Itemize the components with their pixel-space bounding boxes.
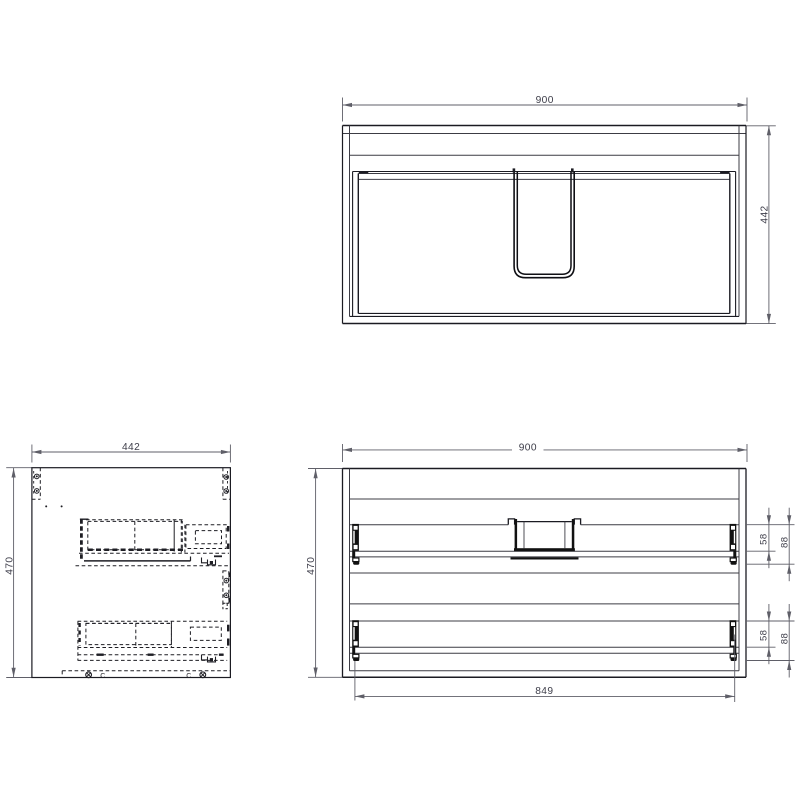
svg-text:58: 58 [759, 630, 770, 641]
svg-text:88: 88 [779, 537, 790, 548]
svg-text:849: 849 [535, 686, 553, 697]
svg-text:470: 470 [4, 556, 15, 574]
svg-text:88: 88 [779, 633, 790, 644]
svg-text:58: 58 [759, 533, 770, 544]
svg-text:C: C [186, 673, 191, 680]
svg-text:900: 900 [536, 95, 554, 106]
svg-text:C: C [100, 673, 105, 680]
svg-text:442: 442 [122, 442, 140, 453]
svg-text:470: 470 [306, 557, 317, 575]
svg-text:442: 442 [759, 205, 770, 223]
svg-text:900: 900 [519, 442, 537, 453]
